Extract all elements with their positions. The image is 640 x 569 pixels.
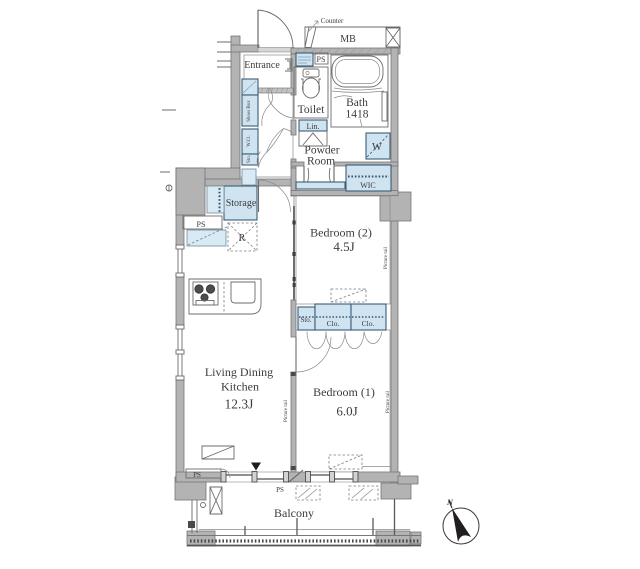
svg-text:PS: PS: [197, 220, 206, 229]
svg-text:Living Dining: Living Dining: [205, 365, 273, 379]
svg-text:Bedroom (2): Bedroom (2): [310, 226, 372, 240]
svg-text:N: N: [446, 497, 454, 507]
svg-text:Shoes Box: Shoes Box: [247, 100, 252, 122]
svg-text:Clo.: Clo.: [327, 319, 340, 328]
svg-text:Sto.: Sto.: [247, 155, 252, 163]
svg-text:PS: PS: [193, 471, 201, 479]
svg-text:MB: MB: [340, 34, 356, 45]
svg-text:Storage: Storage: [226, 198, 257, 209]
svg-text:R: R: [239, 233, 246, 244]
svg-text:Lin.: Lin.: [306, 122, 319, 131]
svg-text:Entrance: Entrance: [244, 60, 280, 71]
svg-text:Bath: Bath: [346, 97, 368, 109]
svg-text:6.0J: 6.0J: [336, 404, 357, 419]
svg-text:Toilet: Toilet: [298, 104, 325, 116]
svg-text:Bedroom (1): Bedroom (1): [313, 385, 375, 399]
svg-text:W: W: [372, 142, 382, 153]
svg-text:PS: PS: [317, 55, 326, 64]
svg-text:W.Cl.: W.Cl.: [247, 135, 252, 146]
svg-text:Kitchen: Kitchen: [221, 380, 259, 394]
svg-text:Room: Room: [307, 156, 335, 168]
svg-text:Picture rail: Picture rail: [284, 399, 289, 422]
svg-text:Counter: Counter: [321, 17, 344, 25]
svg-text:Picture rail: Picture rail: [386, 390, 391, 413]
svg-text:Picture rail: Picture rail: [384, 246, 389, 269]
svg-text:4.5J: 4.5J: [333, 239, 354, 254]
svg-text:WIC: WIC: [360, 181, 376, 190]
svg-text:1418: 1418: [346, 109, 369, 121]
svg-text:Clo.: Clo.: [362, 319, 375, 328]
svg-text:Sto.: Sto.: [300, 316, 311, 324]
svg-text:PS: PS: [276, 486, 284, 494]
svg-text:12.3J: 12.3J: [225, 397, 254, 412]
svg-text:Balcony: Balcony: [274, 506, 314, 520]
